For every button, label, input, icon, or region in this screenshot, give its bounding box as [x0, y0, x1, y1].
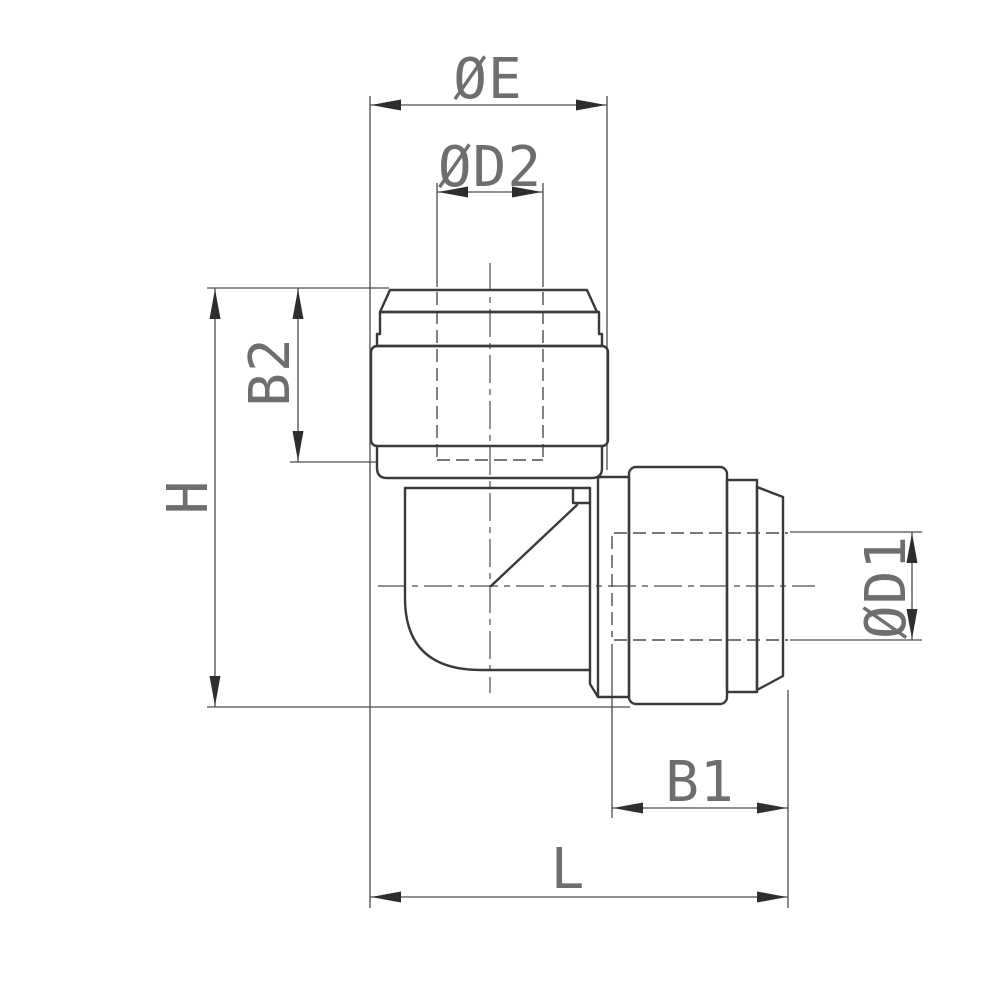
arrow-b1-left — [613, 803, 643, 814]
arrow-l-right — [757, 892, 787, 903]
arrow-h-top — [210, 289, 221, 319]
dimension-labels: ØE ØD2 B2 H ØD1 B1 L — [156, 47, 919, 902]
dim-label-l: L — [551, 837, 586, 902]
right-collet — [757, 487, 783, 690]
arrow-l-left — [371, 892, 401, 903]
arrow-b2-top — [293, 289, 304, 319]
arrow-b2-bottom — [293, 431, 304, 461]
right-neck-ring — [598, 477, 629, 697]
dim-label-dia-d1: ØD1 — [854, 535, 919, 639]
arrow-b1-right — [757, 803, 787, 814]
dim-label-dia-e: ØE — [453, 47, 522, 112]
elbow-corner-notch — [573, 488, 590, 503]
dim-label-dia-d2: ØD2 — [438, 135, 542, 200]
dim-label-h: H — [156, 480, 221, 515]
dimension-arrows — [210, 100, 918, 903]
drawing-page: ØE ØD2 B2 H ØD1 B1 L — [0, 0, 1000, 1000]
extension-lines — [207, 96, 922, 908]
top-collet — [380, 290, 597, 312]
technical-drawing-canvas: ØE ØD2 B2 H ØD1 B1 L — [0, 0, 1000, 1000]
elbow-fitting-outline — [371, 290, 783, 704]
dim-label-b2: B2 — [238, 337, 303, 406]
arrow-oe-left — [371, 100, 401, 111]
dim-label-b1: B1 — [665, 750, 734, 815]
arrow-oe-right — [576, 100, 606, 111]
arrow-h-bottom — [210, 676, 221, 706]
elbow-diagonal-edge — [491, 505, 577, 586]
dimension-lines — [215, 105, 912, 897]
